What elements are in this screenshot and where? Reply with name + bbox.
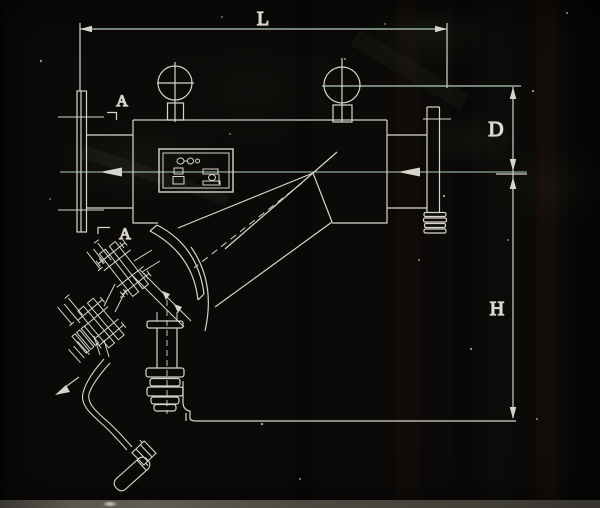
bellows-stack (146, 368, 184, 411)
arrowhead-right (435, 26, 447, 32)
scan-smudges (80, 30, 470, 205)
label-H: H (490, 298, 504, 320)
stud-fan-2 (54, 295, 85, 326)
pressure-gauge-right (324, 58, 360, 122)
flow-arrow-right (398, 168, 420, 177)
flange-joint-2 (73, 294, 128, 351)
flange-stud-stack (424, 213, 447, 234)
label-A-top: A (116, 93, 128, 110)
flow-arrow-left (100, 168, 122, 177)
drain-direction-arrow (55, 377, 79, 395)
drain-flange (147, 321, 183, 328)
arrowhead-left (80, 26, 92, 32)
drain-tube-and-handle (55, 359, 158, 493)
drawing-canvas: L D H A A (0, 0, 600, 508)
section-cut-bottom (98, 228, 110, 235)
scan-edge-strip (0, 500, 600, 508)
flange-joint-1 (94, 237, 154, 300)
blowdown-valve-cluster (54, 237, 191, 362)
handle-grip (112, 455, 153, 494)
label-L: L (257, 8, 269, 30)
cap-arc-inner (157, 225, 204, 294)
pressure-gauge-left (157, 62, 194, 122)
label-A-bottom: A (119, 226, 131, 243)
technical-drawing: L D H A A (0, 0, 600, 508)
cap-arc-outer (150, 231, 198, 300)
section-cut-top (107, 113, 117, 121)
support-bracket (183, 381, 196, 421)
label-D: D (488, 117, 503, 141)
dimension-D-H: D H (196, 86, 527, 421)
